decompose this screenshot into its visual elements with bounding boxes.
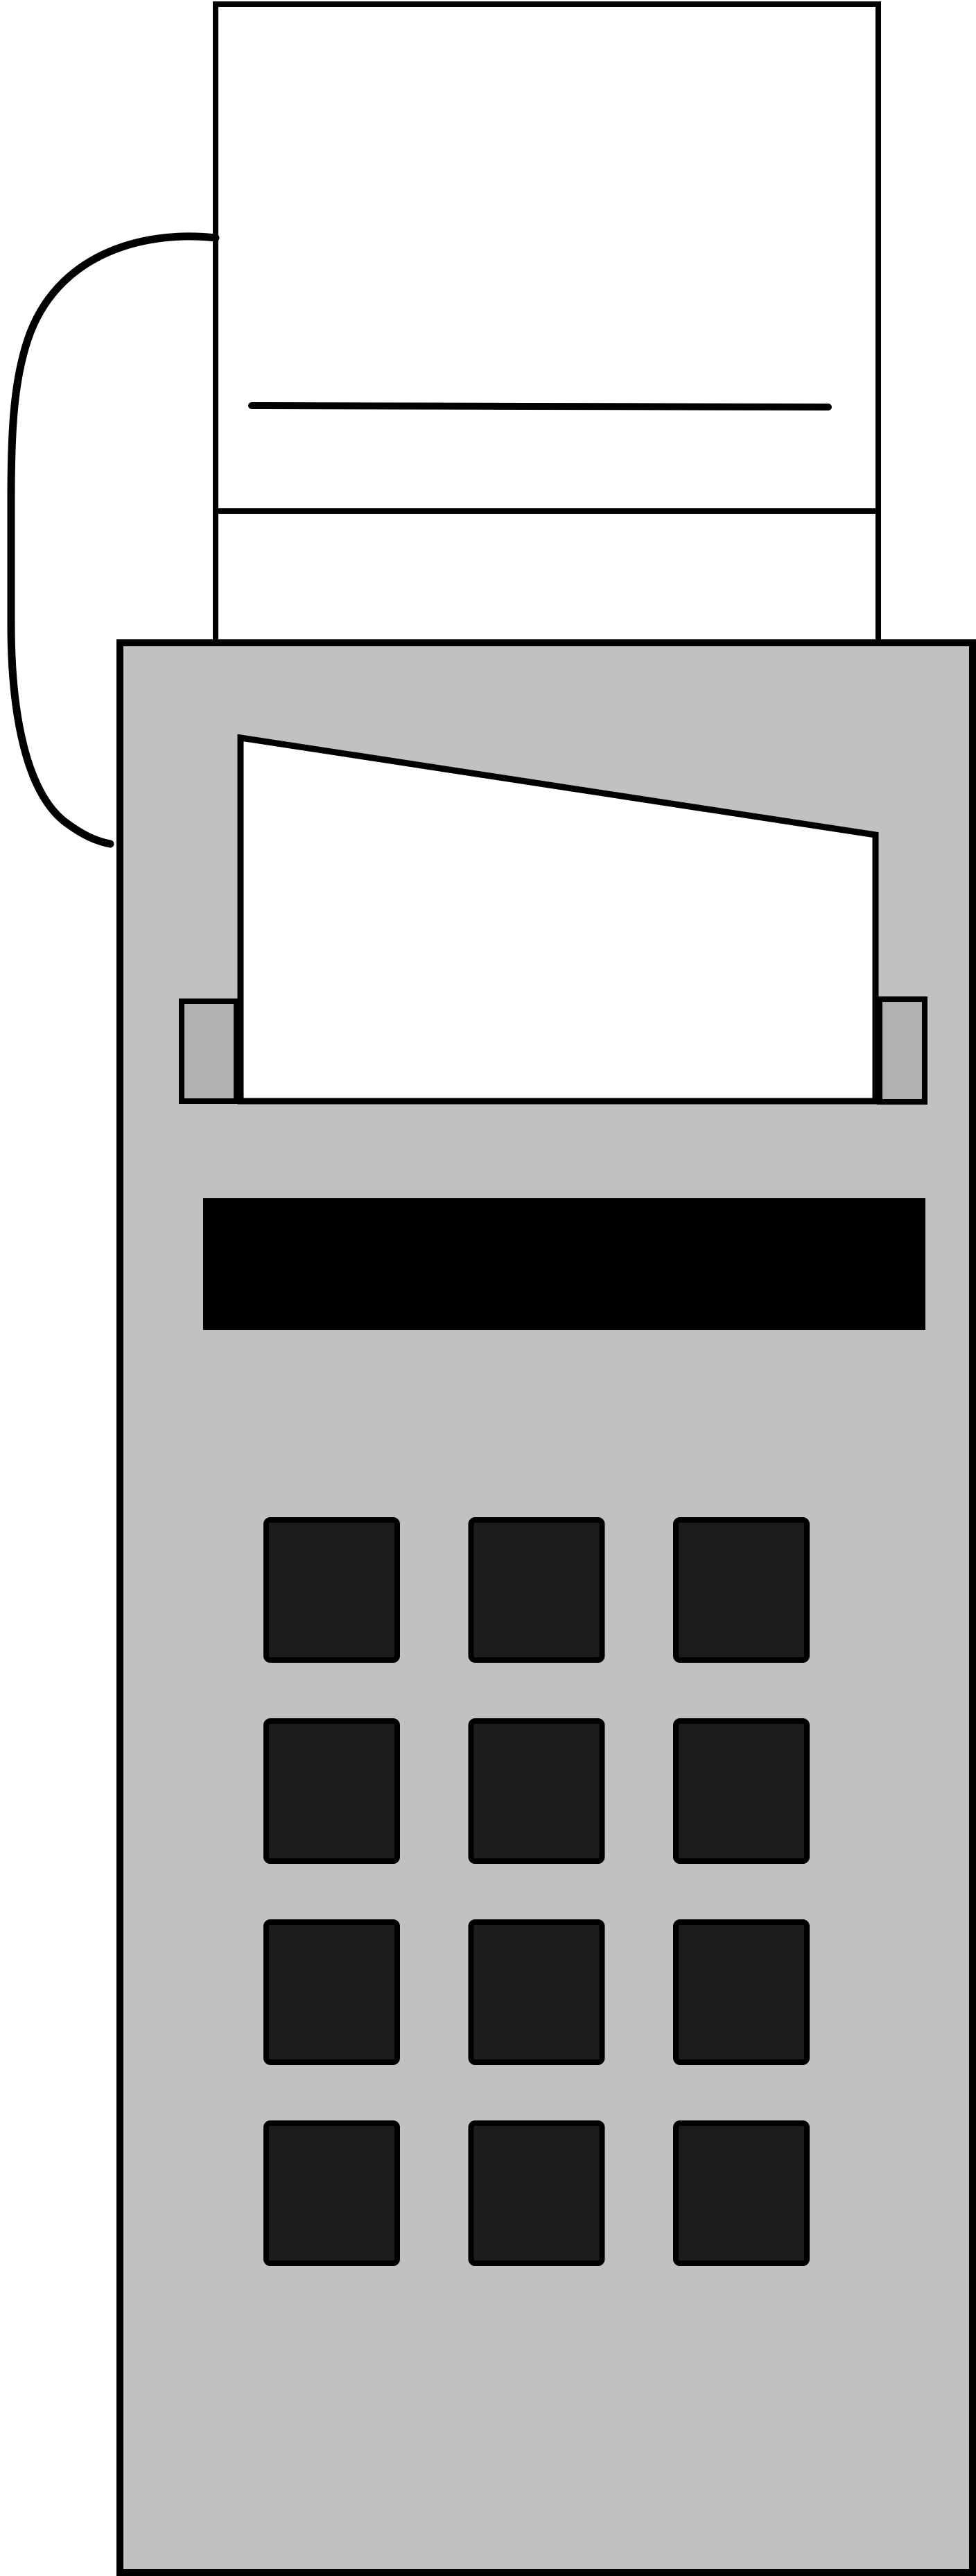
keypad-button-r2c3[interactable] [676,1721,807,1861]
keypad-button-r4c3[interactable] [676,2123,807,2263]
slot-left-bracket [182,1001,236,1101]
keypad-button-r4c2[interactable] [471,2123,602,2263]
slot-right-bracket [880,999,925,1102]
keypad-button-r4c1[interactable] [266,2123,397,2263]
keypad-button-r1c3[interactable] [676,1520,807,1660]
terminal-illustration [0,0,976,2576]
terminal-illustration-canvas [0,0,976,2576]
display-screen [203,1198,925,1330]
keypad-button-r3c1[interactable] [266,1922,397,2062]
keypad-button-r2c1[interactable] [266,1721,397,1861]
keypad-button-r1c2[interactable] [471,1520,602,1660]
receipt-paper [216,4,878,642]
keypad-button-r1c1[interactable] [266,1520,397,1660]
keypad-button-r2c2[interactable] [471,1721,602,1861]
keypad-button-r3c2[interactable] [471,1922,602,2062]
receipt-printed-line [252,406,828,407]
keypad-button-r3c3[interactable] [676,1922,807,2062]
